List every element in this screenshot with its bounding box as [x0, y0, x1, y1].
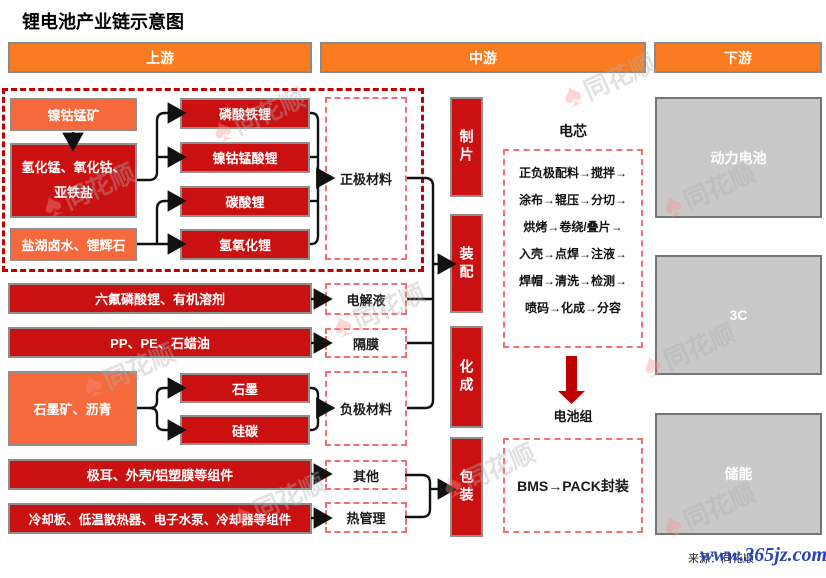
header-upstream: 上游 [8, 42, 312, 73]
box-silicon-carbon: 硅碳 [180, 415, 310, 445]
cell-title: 电芯 [503, 122, 643, 140]
bar-thermal-components: 冷却板、低温散热器、电子水泵、冷却器等组件 [8, 503, 312, 534]
cell-flow-line: 焊帽→清洗→检测→ [505, 268, 641, 295]
pack-title: 电池组 [503, 406, 643, 424]
box-graphite: 石墨 [180, 373, 310, 403]
box-ncm: 镍钴锰酸锂 [180, 142, 310, 173]
box-3c: 3C [655, 255, 822, 375]
box-lithium-carbonate: 碳酸锂 [180, 186, 310, 217]
pack-flow-box: BMS→PACK封装 [503, 438, 643, 533]
process-formation: 化成 [450, 326, 483, 428]
box-thermal-management: 热管理 [325, 502, 407, 533]
cell-flow-line: 涂布→辊压→分切→ [505, 187, 641, 214]
site-watermark: www.365jz.com [700, 544, 826, 567]
cell-to-pack-arrow [558, 356, 585, 404]
cell-flow-line: 喷码→化成→分容 [505, 295, 641, 322]
process-assembly: 装配 [450, 214, 483, 313]
box-separator: 隔膜 [325, 328, 407, 358]
process-packaging: 包装 [450, 437, 483, 537]
box-anode-material: 负极材料 [325, 371, 407, 446]
process-sheeting: 制片 [450, 97, 483, 197]
header-downstream: 下游 [654, 42, 822, 73]
cell-flow-line: 入壳→点焊→注液→ [505, 241, 641, 268]
tonghuashun-logo-icon: ♠ [556, 74, 588, 116]
box-energy-storage: 储能 [655, 413, 822, 535]
bar-other-components: 极耳、外壳/铝塑膜等组件 [8, 459, 312, 490]
page-title: 锂电池产业链示意图 [22, 8, 184, 34]
box-other: 其他 [325, 460, 407, 490]
header-midstream: 中游 [320, 42, 646, 73]
box-electrolyte: 电解液 [325, 283, 407, 315]
box-lithium-source: 盐湖卤水、锂辉石 [10, 228, 137, 261]
cell-flow-box: 正负极配料→搅拌→ 涂布→辊压→分切→ 烘烤→卷绕/叠片→ 入壳→点焊→注液→ … [503, 149, 643, 348]
bar-electrolyte-materials: 六氟磷酸锂、有机溶剂 [8, 283, 312, 314]
box-lfp: 磷酸铁锂 [180, 98, 310, 129]
box-graphite-ore: 石墨矿、沥青 [8, 371, 137, 446]
box-nickel-cobalt-manganese-ore: 镍钴锰矿 [10, 98, 137, 131]
box-power-battery: 动力电池 [655, 97, 822, 218]
cell-flow-line: 正负极配料→搅拌→ [505, 160, 641, 187]
bar-separator-materials: PP、PE、石蜡油 [8, 327, 312, 358]
cell-flow-line: 烘烤→卷绕/叠片→ [505, 214, 641, 241]
box-lithium-hydroxide: 氢氧化锂 [180, 229, 310, 260]
box-precursors: 氢化锰、氧化钴、亚铁盐 [10, 143, 137, 218]
box-cathode-material: 正极材料 [325, 97, 407, 260]
diagram-canvas: 锂电池产业链示意图 上游 中游 下游 镍钴锰矿 氢化锰、氧化钴、亚铁盐 盐湖卤水… [0, 0, 826, 578]
